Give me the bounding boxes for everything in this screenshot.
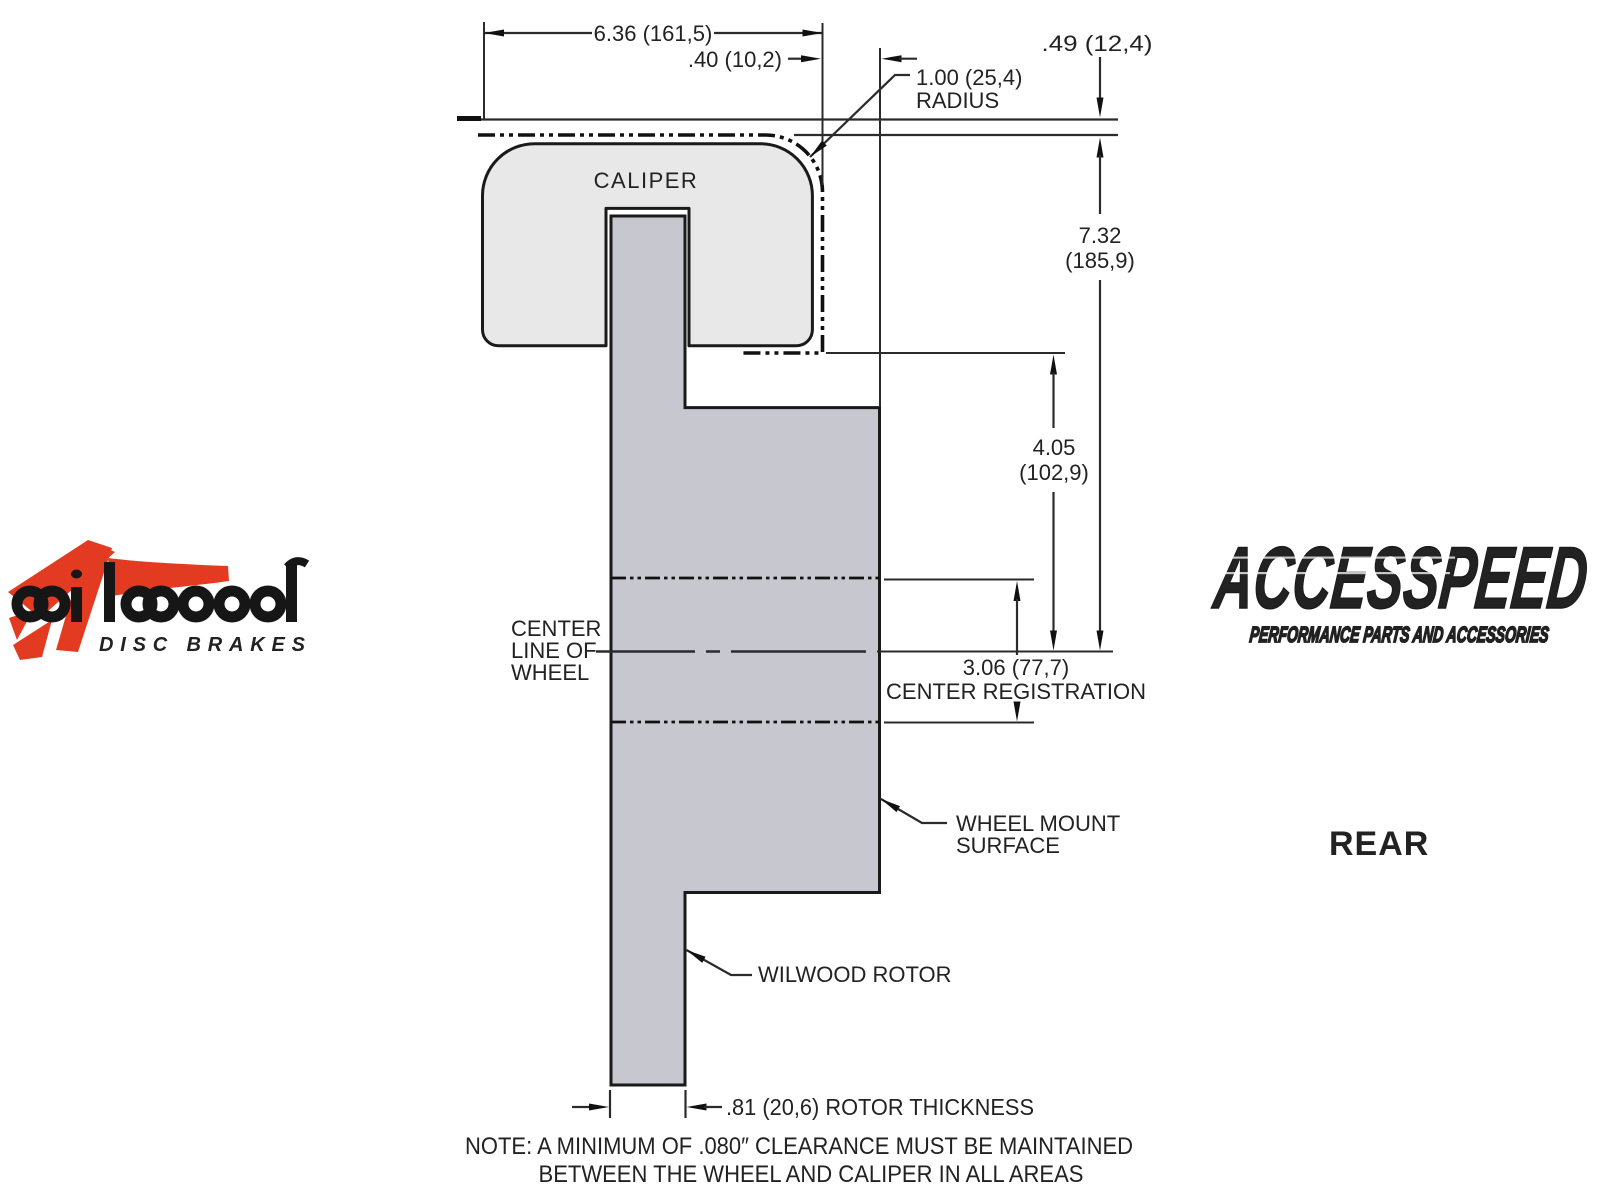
svg-text:.49 (12,4): .49 (12,4) <box>1042 31 1153 56</box>
svg-text:PERFORMANCE PARTS AND ACCESSOR: PERFORMANCE PARTS AND ACCESSORIES <box>1248 622 1550 647</box>
svg-text:(185,9): (185,9) <box>1065 248 1135 273</box>
svg-text:3.06 (77,7): 3.06 (77,7) <box>963 655 1069 680</box>
svg-text:.81 (20,6) ROTOR THICKNESS: .81 (20,6) ROTOR THICKNESS <box>726 1094 1034 1120</box>
svg-text:BETWEEN THE WHEEL AND CALIPER: BETWEEN THE WHEEL AND CALIPER IN ALL ARE… <box>539 1161 1084 1188</box>
svg-text:ACCESSPEED: ACCESSPEED <box>1209 528 1593 627</box>
svg-text:NOTE: A MINIMUM OF .080″ CLEAR: NOTE: A MINIMUM OF .080″ CLEARANCE MUST … <box>465 1133 1133 1160</box>
svg-text:SURFACE: SURFACE <box>956 833 1060 858</box>
svg-text:REAR: REAR <box>1329 825 1429 863</box>
svg-text:1.00 (25,4): 1.00 (25,4) <box>916 65 1022 90</box>
svg-text:4.05: 4.05 <box>1033 435 1076 460</box>
svg-text:(102,9): (102,9) <box>1019 460 1089 485</box>
svg-text:RADIUS: RADIUS <box>916 88 999 113</box>
svg-text:CENTER REGISTRATION: CENTER REGISTRATION <box>886 679 1146 704</box>
svg-text:WILWOOD ROTOR: WILWOOD ROTOR <box>758 962 952 987</box>
svg-text:6.36 (161,5): 6.36 (161,5) <box>594 21 713 46</box>
svg-text:CALIPER: CALIPER <box>594 168 699 193</box>
svg-text:7.32: 7.32 <box>1079 223 1122 248</box>
svg-text:WHEEL: WHEEL <box>511 660 589 685</box>
svg-text:.40 (10,2): .40 (10,2) <box>688 47 782 72</box>
